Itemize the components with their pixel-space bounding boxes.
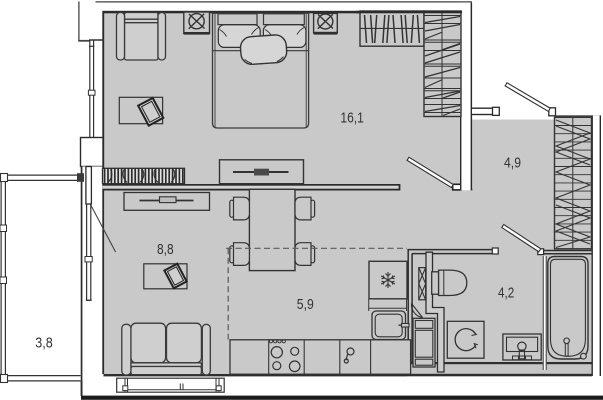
svg-text:16,1: 16,1	[340, 111, 363, 127]
svg-text:3,8: 3,8	[35, 336, 53, 352]
svg-text:4,2: 4,2	[498, 286, 514, 302]
svg-text:8,8: 8,8	[157, 242, 174, 258]
svg-text:5,9: 5,9	[297, 297, 314, 313]
svg-text:4,9: 4,9	[504, 156, 521, 172]
